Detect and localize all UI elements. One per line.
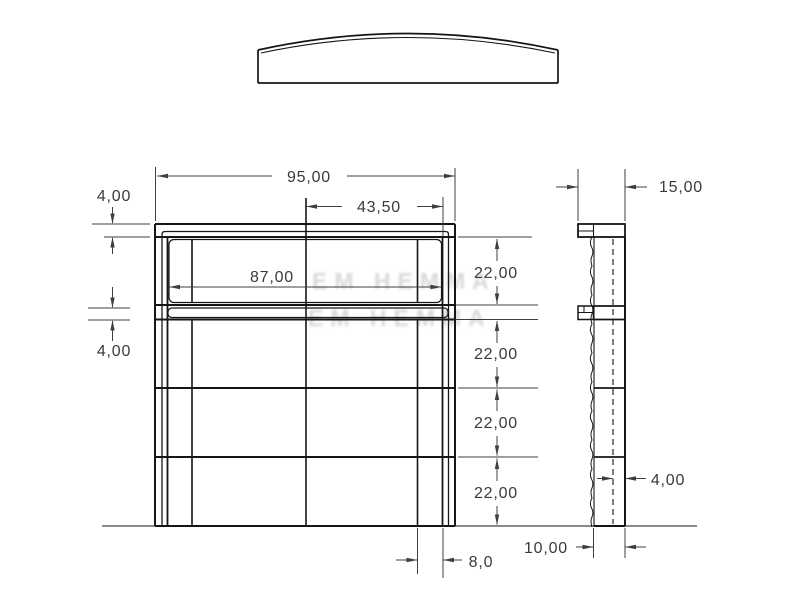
dim-4top-arrow-down xyxy=(110,214,114,225)
dim-4top-label: 4,00 xyxy=(97,188,131,205)
dim-95-label: 95,00 xyxy=(287,169,331,186)
technical-drawing-page: EM HEMMA EM HEMMA xyxy=(0,0,800,600)
dim-22-arrow xyxy=(495,377,499,388)
dim-cap-thickness: 4,00 xyxy=(97,188,131,254)
dim-15-label: 15,00 xyxy=(659,179,703,196)
dim-4side-arrow-right xyxy=(602,476,613,480)
extension-lines xyxy=(88,167,625,578)
dimension-annotations: 95,00 43,50 4,00 87,00 4,00 xyxy=(88,167,703,578)
dim-10-arrow-right xyxy=(583,545,594,549)
cap-plan-outline xyxy=(258,50,558,83)
dim-43-arrow-left xyxy=(306,204,317,208)
dim-22-arrow xyxy=(495,239,499,250)
side-carved-wavy-edge xyxy=(590,237,593,527)
watermark-line-1: EM HEMMA xyxy=(312,268,496,294)
top-view-curved-cap xyxy=(258,34,558,84)
dim-22-label-4: 22,00 xyxy=(474,485,518,502)
cap-plan-outer-arc xyxy=(258,34,558,51)
dim-22-arrow xyxy=(495,294,499,305)
dim-22-arrow xyxy=(495,390,499,401)
watermark: EM HEMMA EM HEMMA xyxy=(308,268,496,331)
dim-10-label: 10,00 xyxy=(524,540,568,557)
dim-15-arrow-left xyxy=(625,185,636,189)
dim-4top-arrow-up xyxy=(110,237,114,248)
dim-4side-label: 4,00 xyxy=(651,472,685,489)
dim-22-arrow xyxy=(495,446,499,457)
dim-95-arrow-right xyxy=(444,174,455,178)
side-view-profile xyxy=(578,224,625,527)
dim-4mid-arrow-down xyxy=(110,298,114,309)
dim-15-arrow-right xyxy=(567,185,578,189)
dim-8-arrow-right xyxy=(407,558,418,562)
dim-87-label: 87,00 xyxy=(250,269,294,286)
dim-4side-arrow-left xyxy=(625,476,636,480)
dim-10-arrow-left xyxy=(625,545,636,549)
dim-43-label: 43,50 xyxy=(357,199,401,216)
dim-22-label-3: 22,00 xyxy=(474,415,518,432)
dim-22-arrow xyxy=(495,321,499,332)
dim-22-arrow xyxy=(495,515,499,526)
dim-95-arrow-left xyxy=(157,174,168,178)
front-view-headboard xyxy=(155,198,455,526)
cap-plan-inner-arc xyxy=(261,38,555,54)
dim-stile-width: 8,0 xyxy=(396,554,493,571)
dim-mid-rail-thickness: 4,00 xyxy=(97,287,131,360)
dim-panel-thickness: 4,00 xyxy=(597,472,685,489)
dim-8-arrow-left xyxy=(443,558,454,562)
drawing-canvas: EM HEMMA EM HEMMA xyxy=(0,0,800,600)
dim-8-label: 8,0 xyxy=(469,554,494,571)
dim-leg-depth: 10,00 xyxy=(524,540,646,557)
dim-row-heights: 22,00 22,00 22,00 22,00 xyxy=(474,239,518,526)
dim-87-arrow-left xyxy=(169,285,180,289)
dim-4mid-label: 4,00 xyxy=(97,343,131,360)
dim-43-arrow-right xyxy=(432,204,443,208)
dim-total-width: 95,00 xyxy=(157,169,455,186)
dim-4mid-arrow-up xyxy=(110,320,114,331)
dim-22-label-2: 22,00 xyxy=(474,346,518,363)
dim-half-opening: 43,50 xyxy=(306,199,443,216)
dim-22-arrow xyxy=(495,459,499,470)
side-rail-junction-lines xyxy=(594,306,626,457)
dim-22-label-1: 22,00 xyxy=(474,265,518,282)
